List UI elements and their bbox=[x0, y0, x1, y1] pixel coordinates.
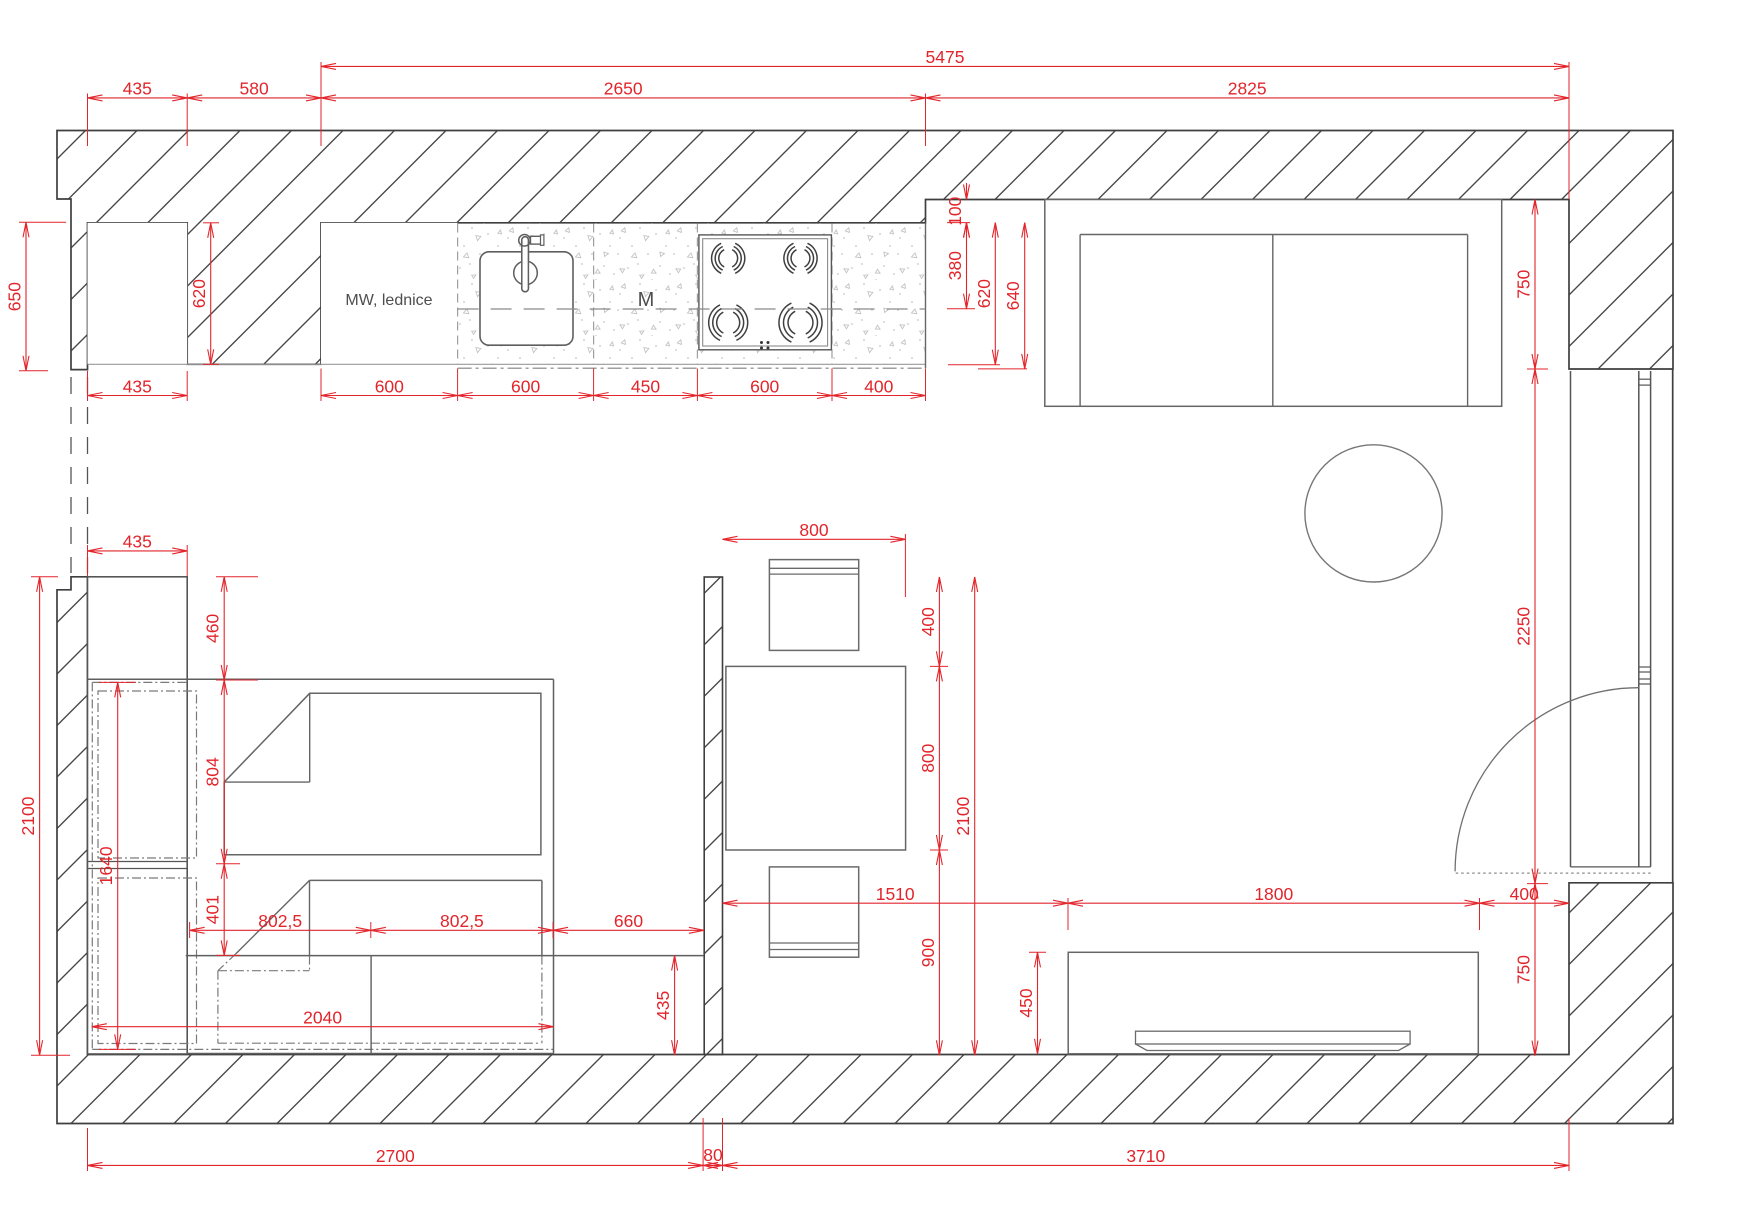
svg-text:900: 900 bbox=[918, 938, 938, 967]
svg-text:400: 400 bbox=[1510, 884, 1539, 904]
svg-text:435: 435 bbox=[123, 79, 152, 99]
svg-text:2040: 2040 bbox=[303, 1008, 342, 1028]
svg-text:600: 600 bbox=[511, 376, 540, 396]
svg-text:2825: 2825 bbox=[1228, 79, 1267, 99]
svg-text:640: 640 bbox=[1003, 281, 1023, 310]
svg-text:2100: 2100 bbox=[18, 796, 38, 835]
svg-text:460: 460 bbox=[203, 614, 223, 643]
svg-text:401: 401 bbox=[203, 895, 223, 924]
svg-text:800: 800 bbox=[799, 520, 828, 540]
svg-text:650: 650 bbox=[5, 282, 25, 311]
svg-text:802,5: 802,5 bbox=[258, 911, 302, 931]
svg-text:435: 435 bbox=[123, 532, 152, 552]
svg-text:80: 80 bbox=[703, 1145, 723, 1165]
svg-text:100: 100 bbox=[945, 196, 965, 225]
svg-text:804: 804 bbox=[203, 757, 223, 786]
svg-text:2650: 2650 bbox=[604, 79, 643, 99]
svg-text:435: 435 bbox=[653, 991, 673, 1020]
svg-text:802,5: 802,5 bbox=[440, 911, 484, 931]
svg-text:MW, lednice: MW, lednice bbox=[345, 292, 432, 309]
svg-text:580: 580 bbox=[239, 79, 268, 99]
svg-text:435: 435 bbox=[123, 376, 152, 396]
svg-text:750: 750 bbox=[1514, 269, 1534, 298]
svg-text:450: 450 bbox=[1016, 988, 1036, 1017]
svg-text:660: 660 bbox=[614, 911, 643, 931]
svg-text:1510: 1510 bbox=[876, 884, 915, 904]
svg-text:2100: 2100 bbox=[953, 796, 973, 835]
svg-text:2700: 2700 bbox=[376, 1146, 415, 1166]
svg-text:620: 620 bbox=[974, 279, 994, 308]
svg-text:3710: 3710 bbox=[1126, 1146, 1165, 1166]
svg-text:600: 600 bbox=[750, 376, 779, 396]
svg-text:800: 800 bbox=[918, 743, 938, 772]
svg-text:450: 450 bbox=[631, 376, 660, 396]
svg-text:5475: 5475 bbox=[926, 47, 965, 67]
svg-text:620: 620 bbox=[189, 279, 209, 308]
svg-text:400: 400 bbox=[918, 607, 938, 636]
svg-text:1640: 1640 bbox=[96, 846, 116, 885]
svg-text:600: 600 bbox=[375, 376, 404, 396]
svg-text:1800: 1800 bbox=[1254, 884, 1293, 904]
svg-text:M: M bbox=[638, 289, 655, 311]
svg-text:2250: 2250 bbox=[1514, 607, 1534, 646]
svg-text:400: 400 bbox=[864, 376, 893, 396]
svg-text:380: 380 bbox=[945, 251, 965, 280]
svg-text:750: 750 bbox=[1514, 955, 1534, 984]
